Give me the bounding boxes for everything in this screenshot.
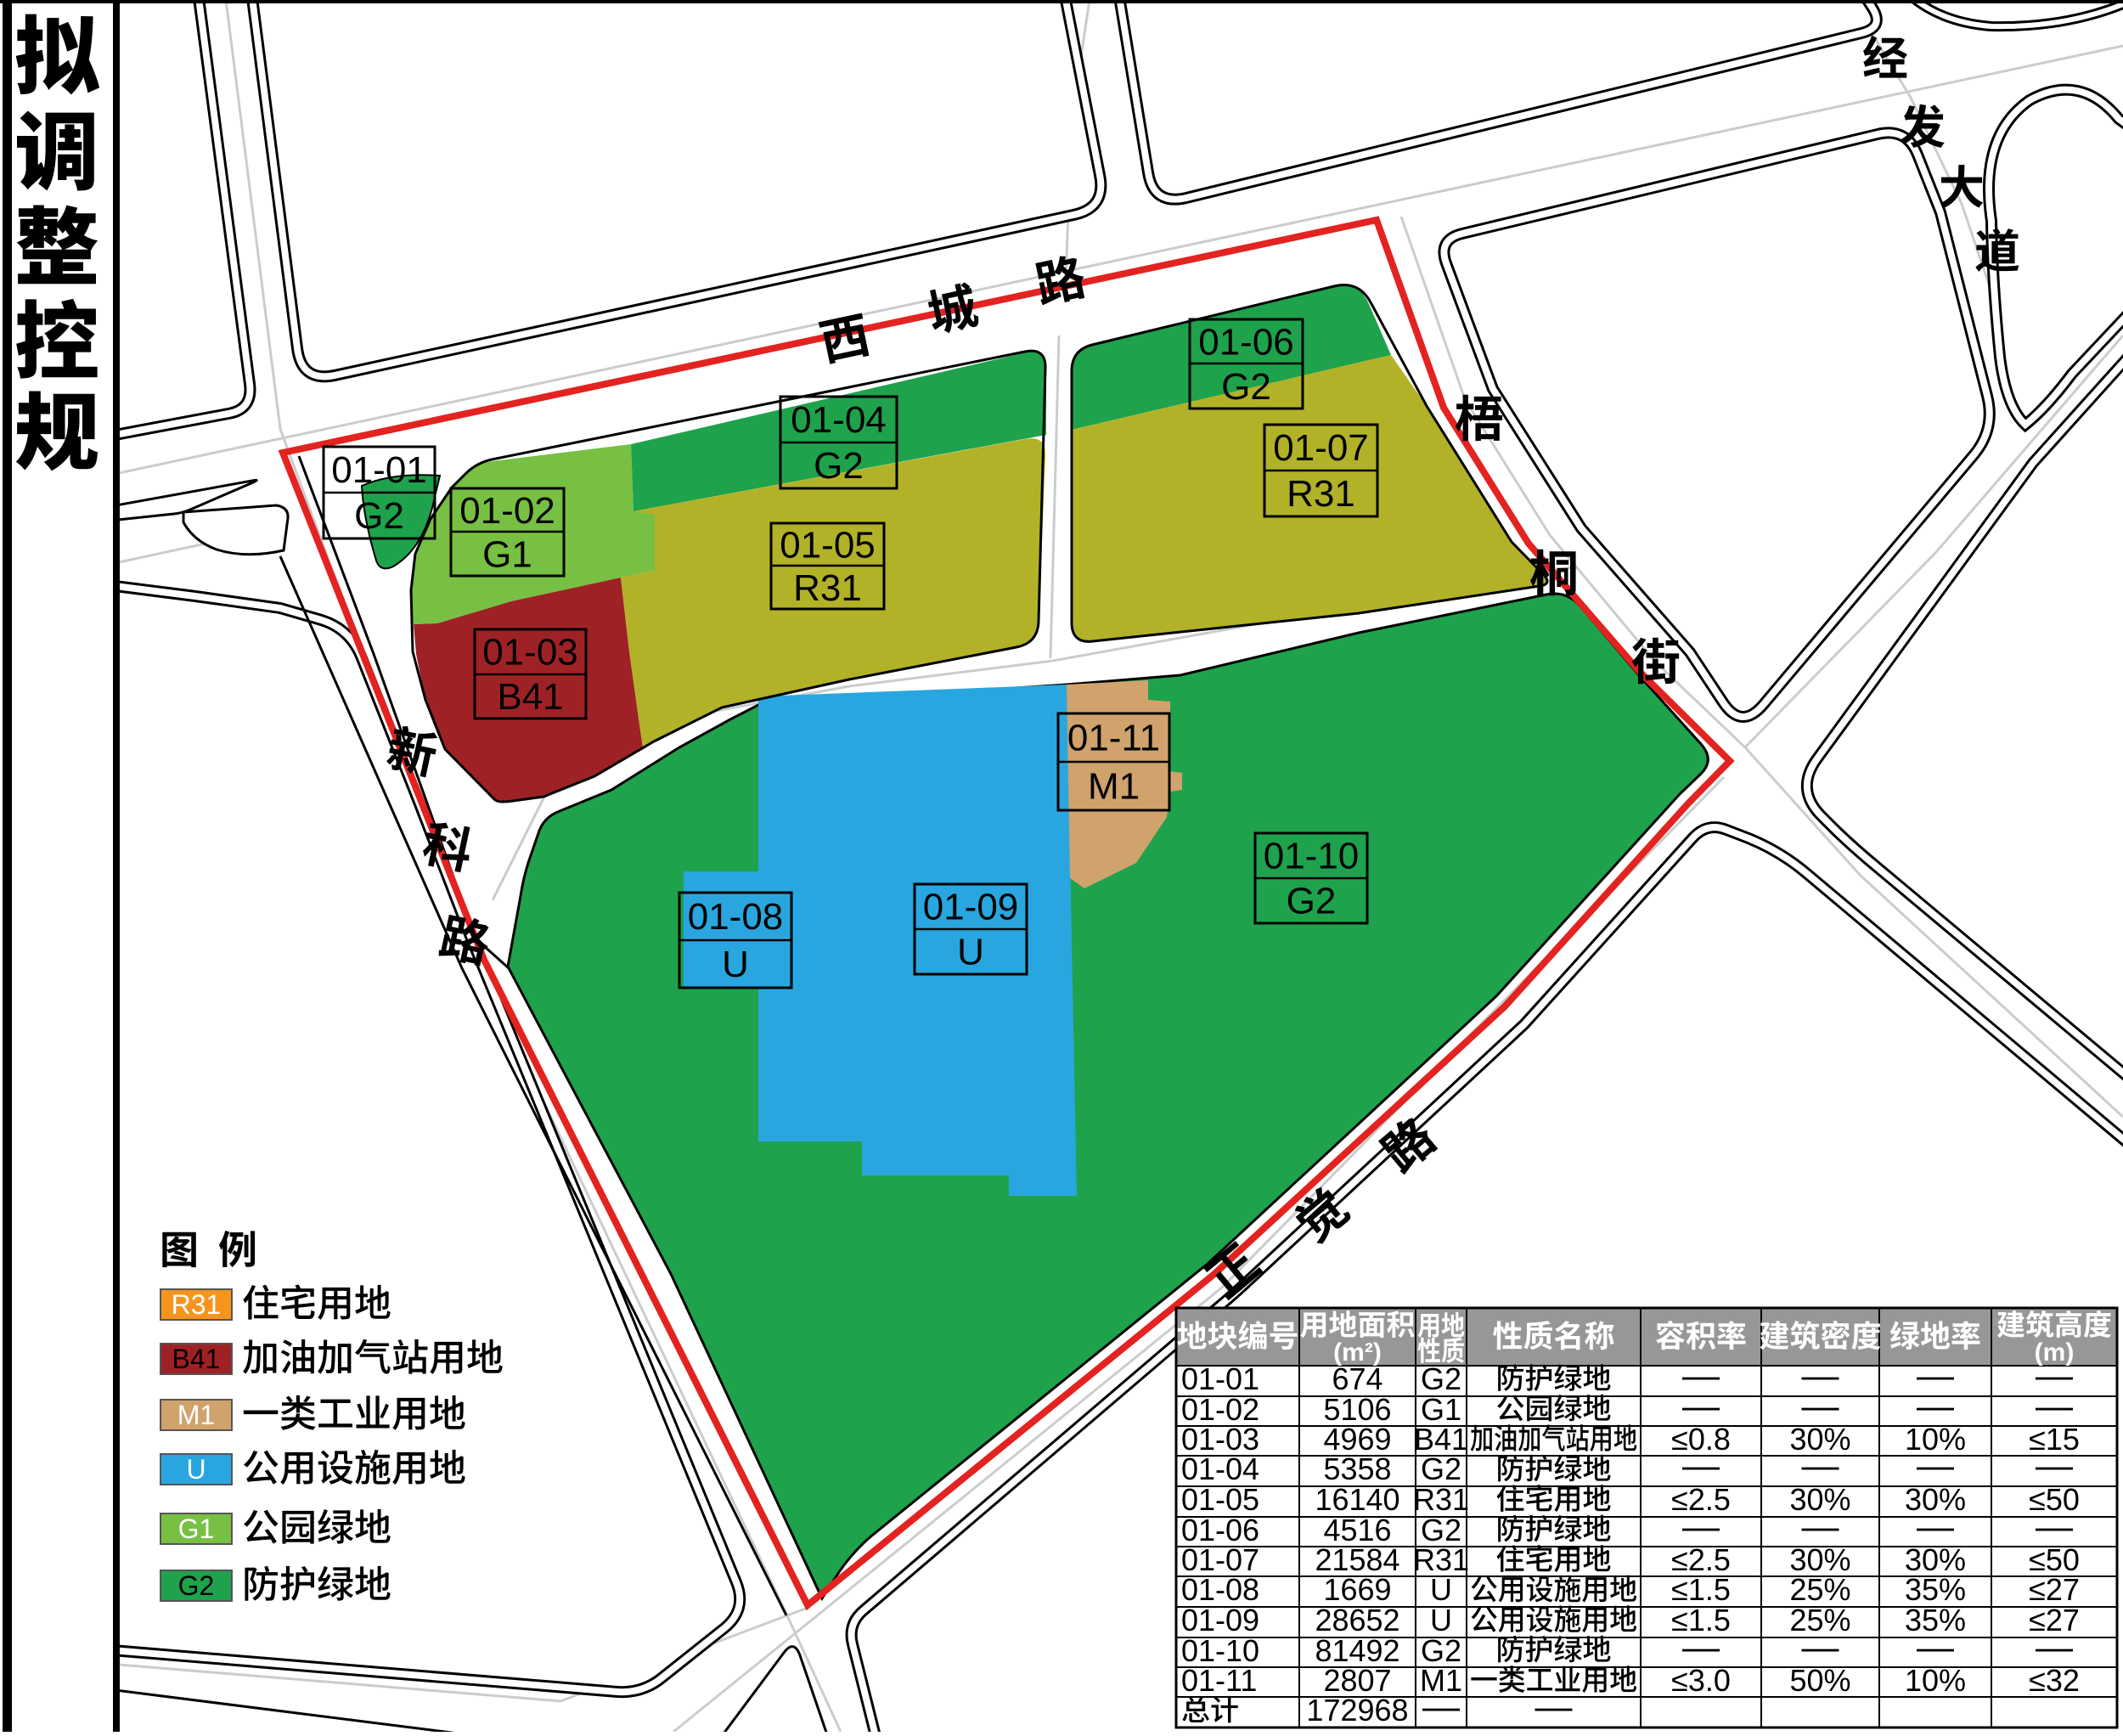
svg-text:25%: 25%: [1789, 1572, 1850, 1607]
svg-text:G2: G2: [354, 495, 404, 537]
svg-text:—: —: [1535, 1686, 1573, 1728]
svg-text:5358: 5358: [1323, 1451, 1391, 1486]
svg-text:≤32: ≤32: [2029, 1663, 2080, 1698]
svg-text:01-08: 01-08: [1181, 1572, 1259, 1607]
svg-text:G2: G2: [1421, 1361, 1461, 1396]
svg-text:—: —: [1917, 1385, 1954, 1427]
svg-text:01-04: 01-04: [791, 399, 887, 441]
svg-text:01-01: 01-01: [1181, 1361, 1259, 1396]
svg-text:35%: 35%: [1905, 1572, 1966, 1607]
svg-text:28652: 28652: [1315, 1603, 1399, 1637]
svg-text:G2: G2: [1421, 1451, 1461, 1486]
svg-text:—: —: [1917, 1506, 1954, 1547]
svg-text:01-10: 01-10: [1264, 836, 1360, 877]
svg-text:01-04: 01-04: [1181, 1451, 1259, 1486]
svg-text:—: —: [2036, 1506, 2073, 1547]
svg-text:R31: R31: [793, 567, 862, 609]
svg-text:B41: B41: [172, 1344, 221, 1374]
svg-text:G1: G1: [178, 1513, 215, 1544]
svg-text:01-11: 01-11: [1181, 1663, 1257, 1698]
svg-text:—: —: [2036, 1385, 2073, 1427]
svg-text:10%: 10%: [1905, 1663, 1966, 1698]
svg-text:—: —: [1802, 1445, 1839, 1486]
svg-text:U: U: [957, 932, 984, 973]
svg-text:—: —: [1802, 1506, 1839, 1547]
svg-text:U: U: [1430, 1572, 1452, 1607]
svg-text:01-08: 01-08: [688, 896, 784, 938]
svg-text:50%: 50%: [1789, 1663, 1850, 1698]
svg-text:01-09: 01-09: [1181, 1603, 1259, 1637]
svg-text:—: —: [2036, 1626, 2073, 1668]
svg-text:01-11: 01-11: [1067, 718, 1160, 759]
svg-text:R31: R31: [1287, 473, 1355, 515]
svg-text:—: —: [1917, 1445, 1954, 1486]
svg-text:—: —: [2036, 1445, 2073, 1486]
svg-text:U: U: [1430, 1603, 1452, 1637]
svg-text:G1: G1: [482, 533, 532, 575]
svg-text:U: U: [186, 1454, 206, 1485]
svg-text:1669: 1669: [1323, 1572, 1391, 1607]
svg-text:01-05: 01-05: [780, 524, 876, 566]
svg-text:≤27: ≤27: [2029, 1572, 2080, 1607]
svg-text:674: 674: [1332, 1361, 1382, 1396]
svg-text:—: —: [1682, 1385, 1720, 1427]
svg-text:≤1.5: ≤1.5: [1671, 1572, 1731, 1607]
svg-text:—: —: [1422, 1686, 1460, 1728]
svg-text:G2: G2: [814, 445, 864, 487]
svg-text:01-01: 01-01: [331, 449, 427, 491]
svg-text:01-09: 01-09: [923, 887, 1019, 928]
svg-text:—: —: [1917, 1626, 1954, 1668]
svg-text:G2: G2: [1287, 881, 1337, 922]
svg-text:—: —: [1802, 1385, 1839, 1427]
svg-text:01-05: 01-05: [1181, 1482, 1259, 1517]
svg-text:16140: 16140: [1315, 1482, 1399, 1517]
svg-text:01-06: 01-06: [1198, 321, 1294, 363]
svg-text:01-02: 01-02: [459, 490, 555, 532]
svg-text:R31: R31: [1413, 1482, 1469, 1517]
svg-text:U: U: [722, 944, 749, 985]
svg-text:R31: R31: [172, 1289, 222, 1320]
svg-text:B41: B41: [497, 676, 563, 718]
svg-text:01-03: 01-03: [482, 631, 578, 673]
svg-text:172968: 172968: [1306, 1693, 1408, 1728]
svg-text:G2: G2: [1221, 366, 1271, 408]
svg-text:M1: M1: [1088, 766, 1140, 808]
svg-text:G2: G2: [178, 1570, 215, 1601]
svg-text:—: —: [1802, 1626, 1839, 1668]
svg-text:M1: M1: [177, 1400, 215, 1430]
svg-text:≤3.0: ≤3.0: [1671, 1663, 1731, 1698]
svg-text:—: —: [1682, 1626, 1720, 1668]
svg-text:—: —: [1682, 1445, 1720, 1486]
svg-text:01-07: 01-07: [1273, 427, 1369, 469]
svg-text:—: —: [1682, 1506, 1720, 1547]
